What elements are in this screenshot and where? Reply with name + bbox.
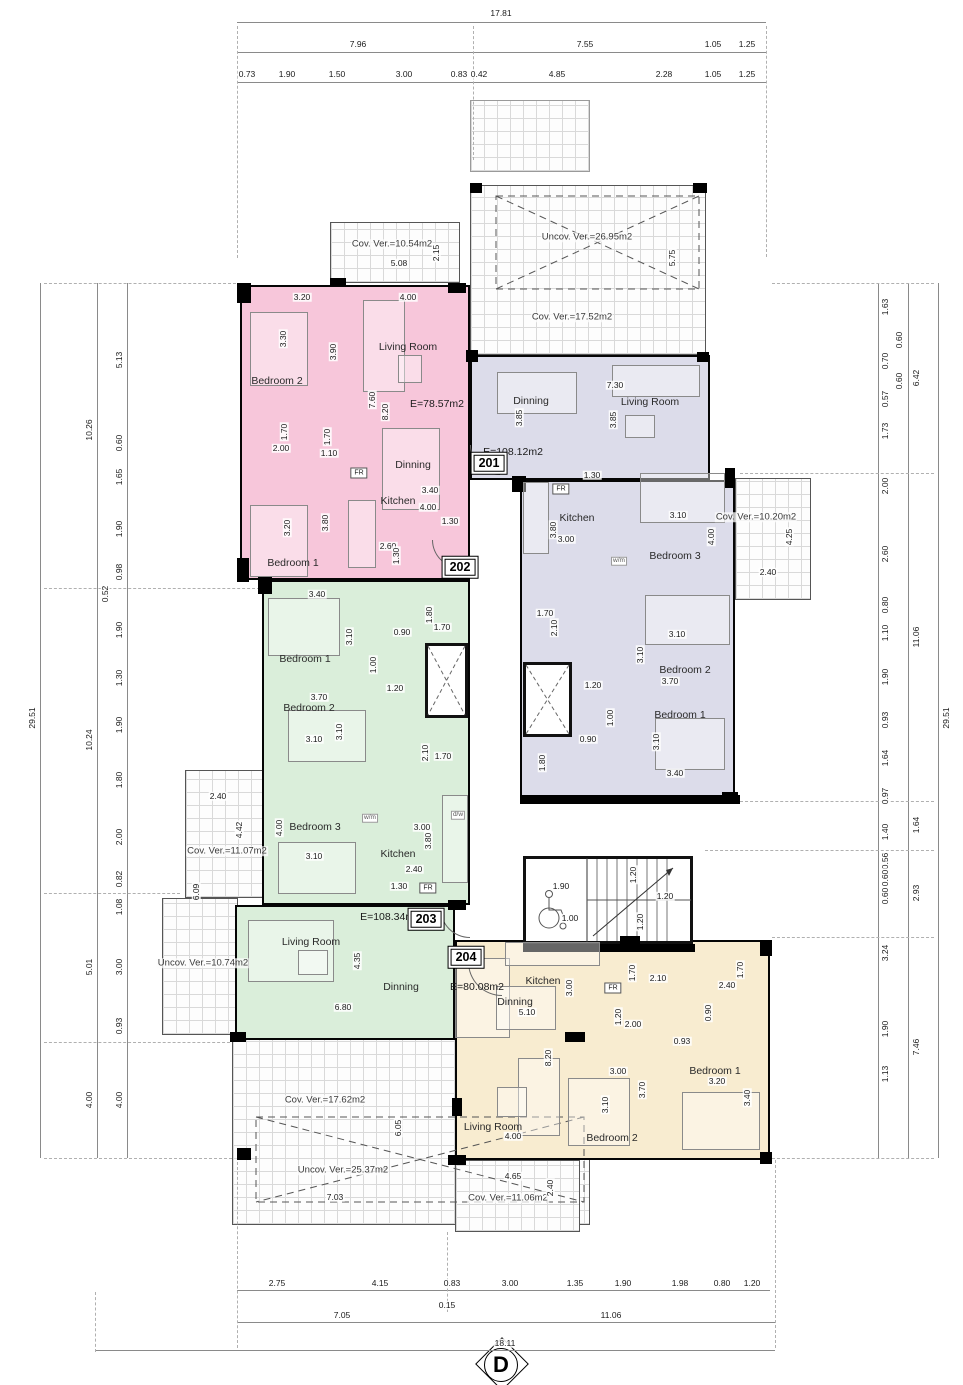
dimension-label: 0.90 (704, 1004, 713, 1023)
wall-segment (448, 283, 466, 293)
coffee-table-icon (625, 415, 655, 438)
dimension-label: 3.10 (601, 1096, 610, 1115)
dimension-label: 2.40 (718, 981, 737, 990)
dimension-line (95, 1350, 775, 1351)
dimension-label: 1.90 (552, 882, 571, 891)
dimension-label: 0.80 (713, 1279, 732, 1288)
wall-segment (452, 1098, 462, 1116)
dimension-label: 3.24 (881, 944, 890, 963)
dimension-label: 4.25 (785, 528, 794, 547)
dimension-label: 1.98 (671, 1279, 690, 1288)
dimension-label: 3.10 (345, 628, 354, 647)
roof-outline (470, 100, 590, 172)
dimension-line (127, 283, 128, 1158)
dimension-label: 2.00 (624, 1020, 643, 1029)
dimension-label: 3.80 (424, 832, 433, 851)
dimension-label: 0.93 (673, 1037, 692, 1046)
dimension-label: 2.75 (268, 1279, 287, 1288)
dimension-label: 1.70 (536, 609, 555, 618)
dimension-label: 4.00 (115, 1091, 124, 1110)
dimension-label: 1.64 (881, 749, 890, 768)
wall-segment (725, 468, 735, 488)
dimension-label: 0.73 (238, 70, 257, 79)
dimension-label: 1.80 (115, 771, 124, 790)
dimension-label: 1.90 (881, 1020, 890, 1039)
dimension-label: 1.05 (704, 40, 723, 49)
coffee-table-icon (298, 950, 328, 975)
dining-table-icon (497, 372, 577, 414)
dimension-label: 2.10 (649, 974, 668, 983)
dimension-label: 7.55 (576, 40, 595, 49)
dimension-label: 3.20 (283, 519, 292, 538)
dimension-label: 1.73 (881, 422, 890, 441)
appliance-label: w/m (362, 814, 378, 823)
dimension-label: 2.28 (655, 70, 674, 79)
dimension-label: 2.00 (272, 444, 291, 453)
dimension-label: 1.30 (583, 471, 602, 480)
dimension-label: 1.70 (323, 428, 332, 447)
dimension-label: 1.10 (881, 624, 890, 643)
extension-line (740, 473, 934, 474)
dimension-label: 3.40 (743, 1089, 752, 1108)
room-label: Kitchen (380, 849, 415, 860)
dimension-label: 4.00 (399, 293, 418, 302)
room-label: Living Room (621, 397, 679, 408)
dimension-label: 0.60 (895, 372, 904, 391)
dimension-label: 0.56 (881, 852, 890, 871)
appliance-label: d/w (451, 811, 465, 820)
room-label: Dinning (497, 997, 533, 1008)
elevator-shaft-center (523, 662, 572, 737)
wall-segment (620, 936, 640, 944)
fridge-label: FR (552, 484, 569, 495)
dimension-label: 3.40 (421, 486, 440, 495)
fridge-label: FR (419, 883, 436, 894)
veranda-cov-11-07 (185, 770, 265, 898)
room-label: Bedroom 2 (659, 665, 710, 676)
dimension-label: 4.00 (85, 1091, 94, 1110)
dimension-label: 3.70 (638, 1081, 647, 1100)
dimension-label: 3.00 (557, 535, 576, 544)
dimension-label: 0.60 (895, 331, 904, 350)
dimension-label: 4.65 (504, 1172, 523, 1181)
dimension-label: 1.70 (280, 423, 289, 442)
dimension-label: 3.00 (395, 70, 414, 79)
elevator-shaft-left (425, 643, 468, 718)
extension-line (775, 1160, 776, 1348)
wall-segment (237, 283, 251, 303)
room-label: Living Room (282, 937, 340, 948)
dimension-line (908, 283, 909, 1158)
extension-line (766, 26, 767, 257)
dimension-label: 1.70 (628, 964, 637, 983)
dimension-label: 7.05 (333, 1311, 352, 1320)
dimension-label: 2.40 (405, 865, 424, 874)
dimension-label: 3.10 (668, 630, 687, 639)
wall-segment (470, 183, 482, 193)
room-label: Bedroom 1 (689, 1066, 740, 1077)
dimension-label: 3.10 (669, 511, 688, 520)
wall-segment (697, 352, 709, 362)
veranda-label: Cov. Ver.=11.06m2 (467, 1193, 549, 1203)
kitchen-counter-icon (505, 942, 600, 966)
extension-line (473, 26, 474, 160)
appliance-label: w/m (611, 557, 627, 566)
veranda-label: Cov. Ver.=10.54m2 (351, 239, 433, 249)
wall-segment (237, 558, 249, 582)
dimension-label: 1.90 (115, 621, 124, 640)
room-label: Bedroom 2 (586, 1133, 637, 1144)
dimension-label: 1.90 (115, 520, 124, 539)
dimension-label: 0.98 (115, 563, 124, 582)
dimension-label: 1.70 (736, 961, 745, 980)
dimension-label: 29.51 (28, 706, 37, 729)
bed-icon (645, 595, 730, 645)
extension-line (237, 1162, 238, 1348)
dimension-label: 2.10 (421, 744, 430, 763)
dimension-label: 11.06 (600, 1311, 623, 1320)
wall-segment (237, 1148, 251, 1160)
dimension-label: 1.40 (881, 823, 890, 842)
bed-icon (288, 710, 366, 762)
dimension-label: 3.00 (501, 1279, 520, 1288)
dimension-label: 1.10 (320, 449, 339, 458)
unit-number-badge: 202 (445, 559, 476, 576)
dimension-label: 0.60 (881, 869, 890, 888)
dimension-label: 6.09 (192, 883, 201, 902)
dimension-label: 11.06 (912, 626, 921, 649)
extension-line (705, 850, 934, 851)
kitchen-counter-icon (523, 482, 549, 554)
dimension-line (237, 1290, 770, 1291)
dimension-label: 0.52 (101, 585, 110, 604)
dimension-label: 1.70 (433, 623, 452, 632)
dimension-label: 7.60 (368, 391, 377, 410)
room-label: Bedroom 2 (251, 376, 302, 387)
dimension-label: 1.30 (390, 882, 409, 891)
veranda-label: Uncov. Ver.=26.95m2 (541, 232, 633, 242)
wall-segment (330, 278, 346, 286)
dimension-label: 1.35 (566, 1279, 585, 1288)
room-label: Bedroom 2 (283, 703, 334, 714)
dimension-label: 5.13 (115, 351, 124, 370)
extension-line (44, 893, 180, 894)
dimension-label: 8.20 (544, 1049, 553, 1068)
dimension-label: 2.00 (115, 828, 124, 847)
kitchen-counter-icon (348, 500, 376, 568)
dimension-label: 17.81 (489, 9, 512, 18)
wall-segment (693, 183, 707, 193)
dimension-label: 0.60 (881, 887, 890, 906)
extension-line (740, 801, 934, 802)
dimension-line (40, 283, 41, 1158)
dimension-label: 3.90 (329, 343, 338, 362)
dimension-label: 4.00 (504, 1132, 523, 1141)
kitchen-counter-icon (442, 795, 468, 883)
dimension-label: 29.51 (942, 706, 951, 729)
dimension-label: 0.70 (881, 352, 890, 371)
room-label: Bedroom 1 (279, 654, 330, 665)
dimension-label: 5.10 (518, 1008, 537, 1017)
dimension-label: 18.11 (494, 1339, 517, 1348)
dimension-label: 1.90 (115, 716, 124, 735)
room-label: Dinning (395, 460, 431, 471)
dimension-label: 0.82 (115, 870, 124, 889)
bed-icon (655, 718, 725, 770)
dimension-label: 3.10 (305, 735, 324, 744)
dimension-label: 1.20 (629, 866, 638, 885)
unit-number-badge: 203 (411, 911, 442, 928)
extension-line (44, 588, 260, 589)
dimension-label: 5.08 (390, 259, 409, 268)
extension-line (95, 1292, 96, 1352)
dimension-label: 3.40 (308, 590, 327, 599)
wall-segment (520, 795, 740, 804)
dimension-label: 0.83 (443, 1279, 462, 1288)
dimension-label: 1.30 (441, 517, 460, 526)
dimension-label: 6.80 (334, 1003, 353, 1012)
dimension-label: 3.10 (335, 723, 344, 742)
dimension-label: 3.70 (310, 693, 329, 702)
dimension-line (237, 1322, 775, 1323)
dimension-label: 5.01 (85, 958, 94, 977)
dimension-label: 0.83 (450, 70, 469, 79)
dimension-label: 3.10 (652, 733, 661, 752)
bed-icon (268, 598, 340, 656)
dimension-label: 2.15 (432, 244, 441, 263)
dimension-label: 2.40 (759, 568, 778, 577)
dimension-label: 1.13 (881, 1065, 890, 1084)
dimension-label: 7.03 (326, 1193, 345, 1202)
dimension-label: 5.75 (668, 249, 677, 268)
dimension-label: 1.25 (738, 70, 757, 79)
dimension-label: 1.65 (115, 468, 124, 487)
dimension-label: 0.97 (881, 787, 890, 806)
dimension-label: 1.30 (115, 669, 124, 688)
dimension-label: 1.90 (614, 1279, 633, 1288)
extension-line (44, 1042, 230, 1043)
room-label: Kitchen (559, 513, 594, 524)
wall-segment (258, 576, 272, 594)
dimension-label: 1.80 (538, 754, 547, 773)
unit-number-badge: 204 (451, 949, 482, 966)
veranda-label: Uncov. Ver.=25.37m2 (297, 1165, 389, 1175)
dimension-label: 1.00 (369, 656, 378, 675)
dimension-label: 2.60 (881, 545, 890, 564)
dimension-label: 1.00 (606, 709, 615, 728)
dimension-label: 4.42 (235, 821, 244, 840)
dimension-label: 3.85 (609, 411, 618, 430)
fridge-label: FR (604, 983, 621, 994)
dimension-label: 7.30 (606, 381, 625, 390)
dimension-line (938, 283, 939, 1158)
dimension-label: 3.10 (636, 646, 645, 665)
dimension-label: 1.20 (386, 684, 405, 693)
dimension-label: 4.00 (419, 503, 438, 512)
dimension-label: 1.20 (636, 913, 645, 932)
coffee-table-icon (398, 355, 422, 383)
sofa-icon (612, 365, 700, 397)
room-label: Bedroom 1 (267, 558, 318, 569)
dimension-label: 7.46 (912, 1038, 921, 1057)
dimension-label: 1.50 (328, 70, 347, 79)
room-label: Dinning (513, 396, 549, 407)
uncov-veranda-x-top (495, 195, 700, 290)
wall-segment (466, 350, 478, 362)
dimension-line (237, 82, 766, 83)
veranda-label: Cov. Ver.=17.52m2 (531, 312, 613, 322)
dimension-label: 0.90 (579, 735, 598, 744)
room-label: Dinning (383, 982, 419, 993)
dimension-label: 4.85 (548, 70, 567, 79)
unit-area-label: E=78.57m2 (410, 399, 464, 410)
dimension-label: 10.24 (85, 728, 94, 751)
dimension-label: 3.00 (609, 1067, 628, 1076)
dimension-label: 1.20 (656, 892, 675, 901)
dimension-label: 10.26 (85, 418, 94, 441)
dimension-label: 1.63 (881, 298, 890, 317)
veranda-label: Cov. Ver.=11.07m2 (186, 846, 268, 856)
dimension-label: 2.00 (881, 477, 890, 496)
wall-segment (760, 940, 772, 956)
dimension-label: 2.93 (912, 884, 921, 903)
wall-segment (760, 1152, 772, 1164)
dimension-label: 1.00 (561, 914, 580, 923)
dimension-label: 0.57 (881, 390, 890, 409)
dimension-label: 8.20 (381, 403, 390, 422)
dimension-line (97, 283, 98, 1158)
dimension-label: 0.42 (470, 70, 489, 79)
dimension-label: 3.10 (305, 852, 324, 861)
dimension-label: 1.05 (704, 70, 723, 79)
dimension-label: 1.20 (614, 1008, 623, 1027)
dimension-label: 1.20 (743, 1279, 762, 1288)
dimension-label: 3.70 (661, 677, 680, 686)
dimension-label: 0.93 (881, 711, 890, 730)
dimension-label: 2.10 (550, 619, 559, 638)
dimension-label: 0.90 (393, 628, 412, 637)
veranda-label: Cov. Ver.=17.62m2 (284, 1095, 366, 1105)
veranda-label: Uncov. Ver.=10.74m2 (157, 958, 249, 968)
dimension-label: 1.64 (912, 816, 921, 835)
fridge-label: FR (350, 468, 367, 479)
section-marker-letter: D (484, 1348, 518, 1382)
room-label: Living Room (379, 342, 437, 353)
dimension-label: 3.80 (321, 514, 330, 533)
dimension-label: 3.20 (293, 293, 312, 302)
dimension-label: 1.08 (115, 898, 124, 917)
dimension-label: 2.40 (209, 792, 228, 801)
extension-line (44, 1158, 232, 1159)
dimension-line (237, 22, 766, 23)
dimension-label: 4.00 (275, 819, 284, 838)
dimension-label: 1.70 (434, 752, 453, 761)
extension-line (772, 937, 934, 938)
room-label: Bedroom 1 (654, 710, 705, 721)
extension-line (44, 283, 236, 284)
dimension-label: 3.20 (708, 1077, 727, 1086)
dimension-label: 6.05 (394, 1119, 403, 1138)
dimension-label: 4.35 (353, 952, 362, 971)
veranda-cov-10-20 (735, 478, 811, 600)
dimension-label: 3.85 (515, 409, 524, 428)
dimension-label: 0.80 (881, 596, 890, 615)
dimension-label: 3.00 (115, 958, 124, 977)
wall-segment (230, 1032, 246, 1042)
extension-line (237, 26, 238, 258)
wall-segment (565, 1032, 585, 1042)
dimension-label: 1.20 (584, 681, 603, 690)
dimension-label: 1.80 (425, 606, 434, 625)
dimension-label: 1.90 (881, 668, 890, 687)
dimension-label: 4.00 (707, 528, 716, 547)
dimension-label: 4.15 (371, 1279, 390, 1288)
room-label: Bedroom 3 (649, 551, 700, 562)
dimension-label: 0.15 (438, 1301, 457, 1310)
dimension-label: 3.00 (565, 979, 574, 998)
dimension-label: 1.30 (392, 547, 401, 566)
wall-segment (448, 1155, 466, 1165)
floor-plan-canvas: D 17.817.967.551.051.250.731.901.503.000… (0, 0, 963, 1385)
room-label: Kitchen (380, 496, 415, 507)
dimension-label: 7.96 (349, 40, 368, 49)
dimension-label: 0.93 (115, 1017, 124, 1036)
unit-number-badge: 201 (474, 455, 505, 472)
unit-area-label: E=80.08m2 (450, 982, 504, 993)
dimension-label: 6.42 (912, 369, 921, 388)
dimension-label: 1.25 (738, 40, 757, 49)
extension-line (772, 283, 934, 284)
dimension-label: 2.40 (546, 1179, 555, 1198)
dimension-line (237, 52, 766, 53)
dimension-label: 3.30 (279, 330, 288, 349)
dimension-label: 3.00 (413, 823, 432, 832)
dimension-label: 1.90 (278, 70, 297, 79)
extension-line (772, 1158, 934, 1159)
room-label: Kitchen (525, 976, 560, 987)
room-label: Bedroom 3 (289, 822, 340, 833)
dimension-label: 0.60 (115, 434, 124, 453)
dimension-label: 3.40 (666, 769, 685, 778)
veranda-label: Cov. Ver.=10.20m2 (715, 512, 797, 522)
coffee-table-icon (497, 1087, 527, 1117)
